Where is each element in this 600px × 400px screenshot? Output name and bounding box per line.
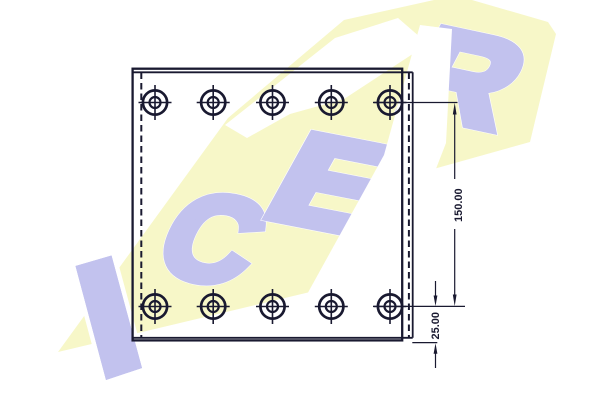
svg-text:25.00: 25.00 — [430, 312, 442, 340]
svg-text:150.00: 150.00 — [453, 188, 465, 222]
